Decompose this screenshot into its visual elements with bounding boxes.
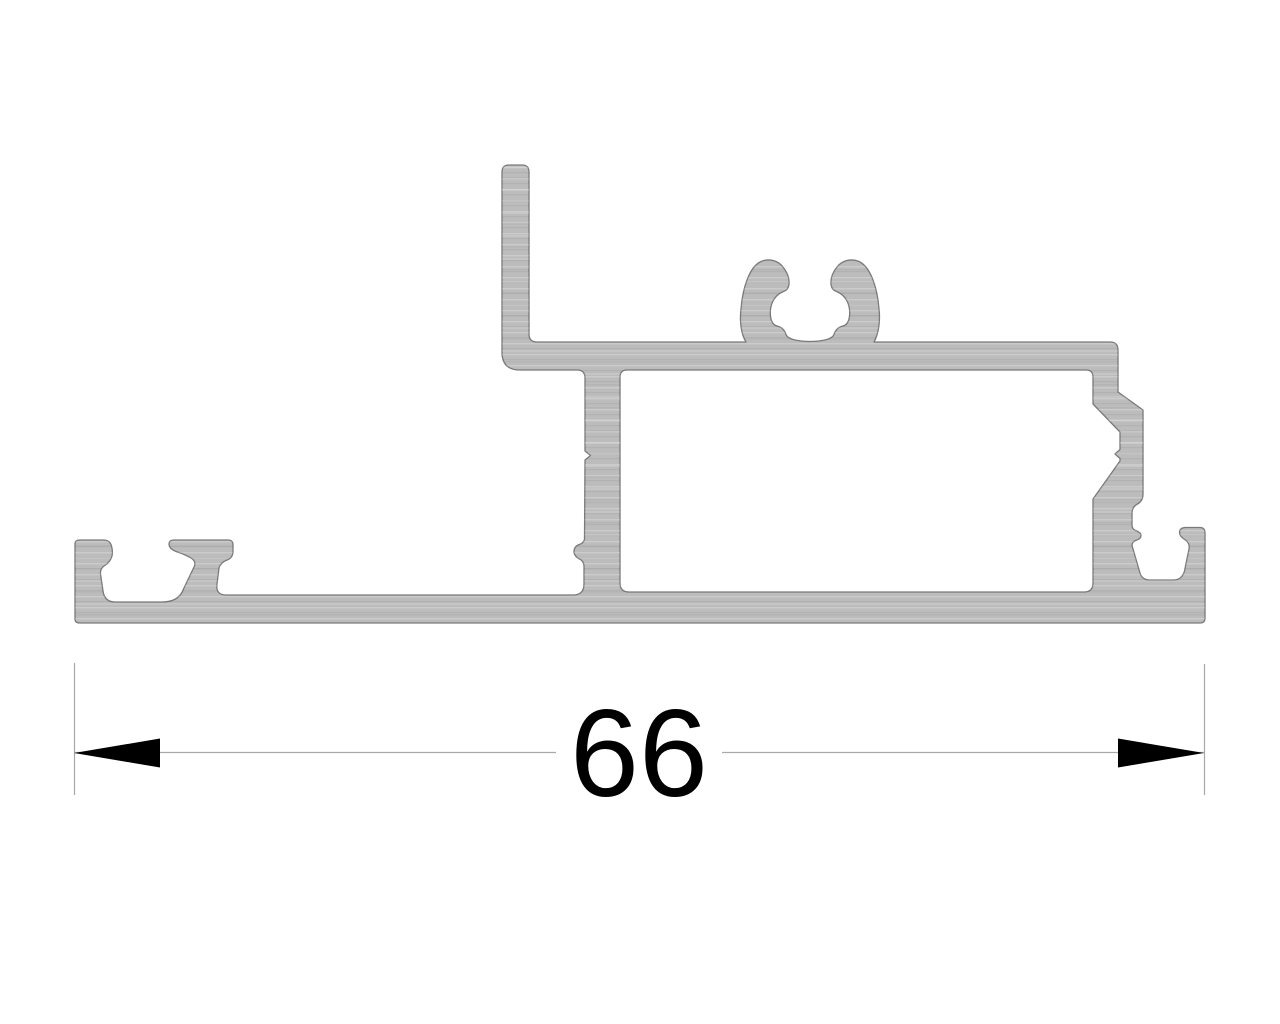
dimension-arrow-right-icon [1118,739,1204,768]
technical-drawing-canvas: 66 [0,0,1280,1024]
brushed-metal-texture-coarse [75,165,1205,623]
brushed-metal-texture [75,165,1205,623]
dimension-value-label: 66 [570,685,708,823]
dimension-arrow-left-icon [74,739,160,768]
extrusion-profile-shape [75,165,1205,623]
extrusion-drawing-svg: 66 [0,0,1280,1024]
